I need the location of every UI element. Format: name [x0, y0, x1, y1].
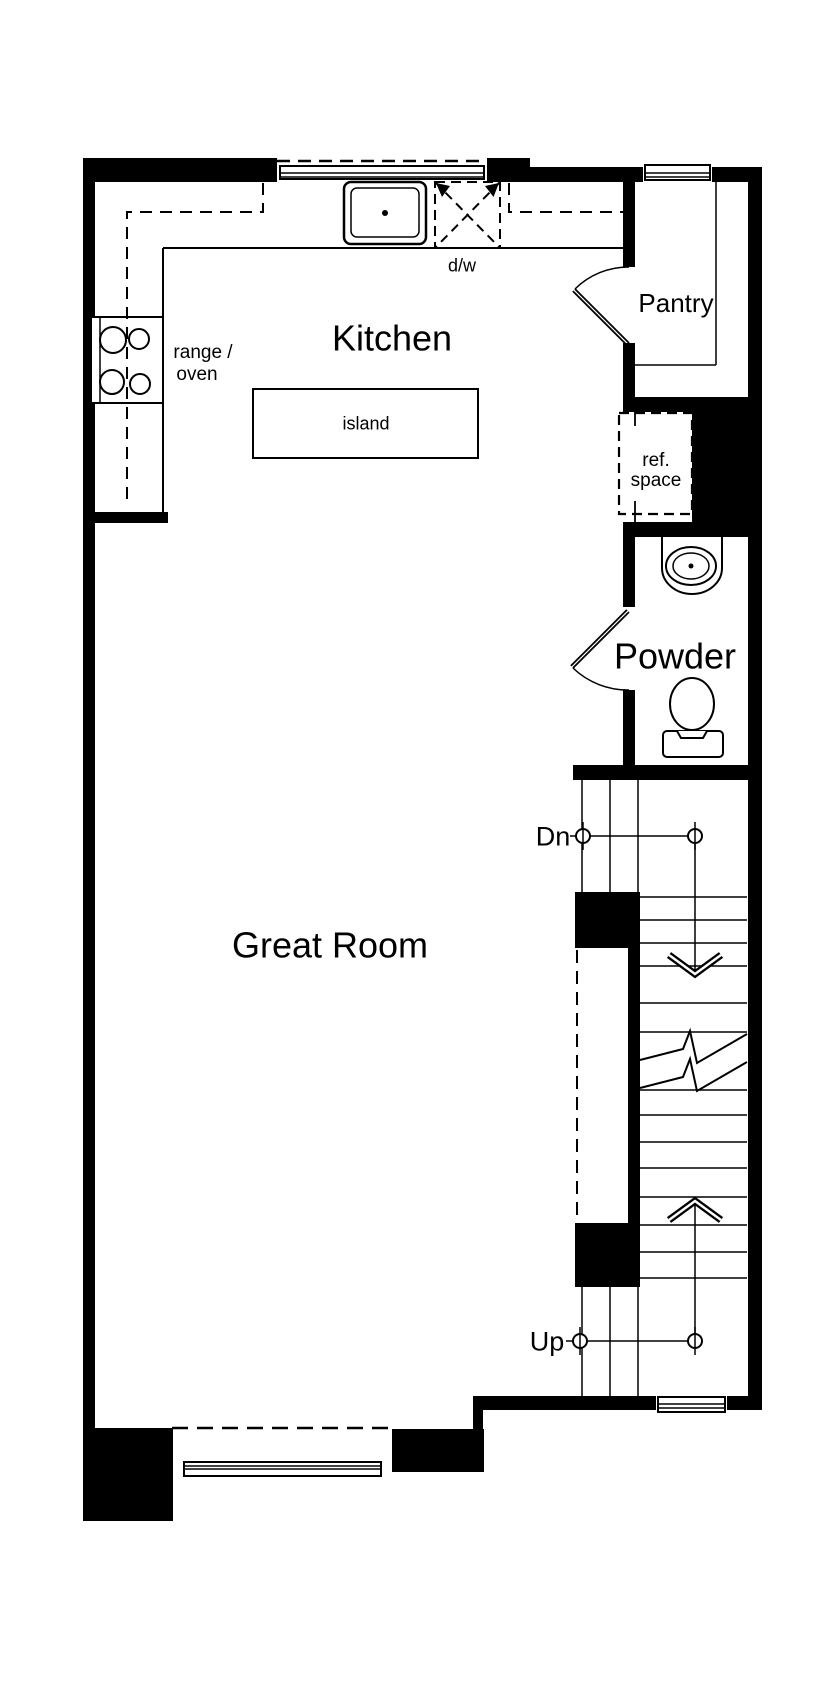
great-room-label: Great Room [232, 924, 428, 965]
dishwasher-label: d/w [448, 256, 476, 277]
dishwasher [435, 182, 500, 248]
kitchen-pantry-wall-upper [623, 177, 635, 267]
kitchen-label: Kitchen [332, 317, 452, 358]
stair-treads-lower [640, 1090, 747, 1278]
stair-down-label: Dn [536, 821, 571, 852]
stair-up-label: Up [530, 1326, 565, 1357]
ref-space-label-line1: ref. [642, 450, 669, 472]
powder-top-wall [623, 522, 748, 537]
kitchen-sink [344, 182, 426, 244]
pantry-window [643, 161, 712, 182]
pantry-door [573, 267, 629, 345]
stair-window [656, 1396, 727, 1413]
stairs [566, 780, 747, 1396]
powder-left-wall-upper [623, 537, 635, 607]
powder-sink [662, 537, 722, 594]
pantry-area [573, 182, 716, 365]
windows [183, 158, 727, 1477]
powder-left-wall-lower [623, 690, 635, 765]
upper-cabinet-right [509, 183, 623, 212]
counter-edge [163, 248, 623, 512]
floor-plan: Kitchen island range / oven d/w Pantry r… [0, 0, 840, 1683]
stair-top-wall [573, 765, 762, 780]
stair-landing-block-lower [575, 1223, 640, 1287]
right-wall [748, 167, 762, 1410]
pantry-label: Pantry [638, 289, 713, 319]
great-room-window [183, 1462, 382, 1477]
stair-break-lines [640, 1031, 747, 1091]
ref-space-right-wall-block [692, 412, 762, 537]
ref-space-label-line2: space [631, 470, 682, 492]
kitchen-pantry-wall-lower [623, 343, 635, 397]
stair-treads-upper [640, 897, 747, 1032]
toilet [663, 678, 723, 757]
floor-plan-drawing [0, 0, 840, 1683]
range-oven-label-line2: oven [176, 364, 217, 386]
range-oven-label-line1: range / [173, 342, 232, 364]
stair-landing-block-upper [575, 892, 640, 948]
pantry-bottom-wall [623, 397, 762, 412]
powder-label: Powder [614, 635, 736, 676]
island-label: island [342, 414, 389, 435]
bottom-wall-step [473, 1396, 483, 1430]
stair-center-wall [628, 948, 640, 1223]
kitchen-window [277, 158, 487, 182]
great-room-bottom-wall-right [392, 1429, 484, 1472]
great-room-bottom-wall-left [83, 1428, 173, 1521]
counter-end-cap [93, 512, 168, 523]
